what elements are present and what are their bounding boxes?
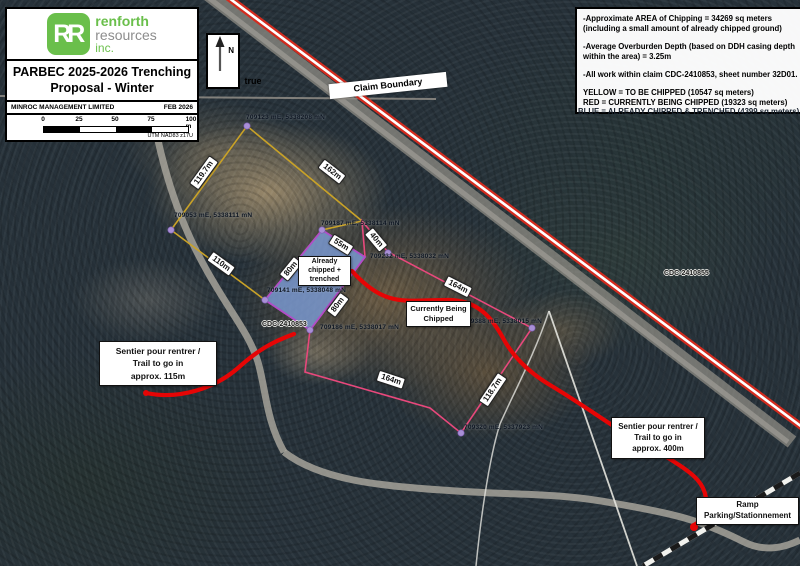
coord-label: 709320 mE, 5337923 mN <box>464 424 543 431</box>
note-claim: -All work within claim CDC-2410853, shee… <box>583 70 800 80</box>
ramp-parking-box: Ramp Parking/Stationnement <box>696 497 799 525</box>
scale-tick: 50 <box>111 116 118 123</box>
map-canvas: 709123 mE, 5338208 mN 709053 mE, 5338111… <box>0 0 800 566</box>
north-true-label: true <box>238 76 268 86</box>
legend-yellow-red: YELLOW = TO BE CHIPPED (10547 sq meters)… <box>583 88 800 108</box>
scale-tick: 0 <box>41 116 45 123</box>
map-date: FEB 2026 <box>164 104 193 111</box>
north-arrow: N true <box>206 33 240 89</box>
logo-name-bottom: inc. <box>95 42 156 54</box>
scale-bar: 0 25 50 75 100 m UTM NAD83 z17U <box>7 115 197 140</box>
scale-tick: 25 <box>75 116 82 123</box>
company-name: MINROC MANAGEMENT LIMITED <box>11 104 114 111</box>
claim-number-east: CDC-2410855 <box>664 270 709 277</box>
corner-markers <box>168 123 535 436</box>
coord-label: 709123 mE, 5338208 mN <box>246 114 325 121</box>
coord-label: 709141 mE, 5338048 mN <box>267 287 346 294</box>
company-logo: RR renforth resources inc. <box>7 9 197 59</box>
title-meta-row: MINROC MANAGEMENT LIMITED FEB 2026 <box>7 100 197 115</box>
rr-logo-icon: RR <box>47 13 90 55</box>
road-west <box>148 88 284 452</box>
title-block: RR renforth resources inc. PARBEC 2025-2… <box>5 7 199 142</box>
currently-chipped-box: Currently Being Chipped <box>406 301 471 327</box>
north-n-label: N <box>228 46 234 55</box>
trail-right-box: Sentier pour rentrer / Trail to go in ap… <box>611 417 705 459</box>
coord-label: 709232 mE, 5338032 mN <box>370 253 449 260</box>
coord-label: 709187 mE, 5338114 mN <box>321 220 400 227</box>
legend-blue: BLUE = ALREADY CHIPPED & TRENCHED (4399 … <box>578 107 799 116</box>
claim-number-west: CDC-2410853 <box>262 321 307 328</box>
note-area: -Approximate AREA of Chipping = 34269 sq… <box>583 14 800 34</box>
logo-name-mid: resources <box>95 28 156 42</box>
notes-box: -Approximate AREA of Chipping = 34269 sq… <box>575 7 800 114</box>
datum-label: UTM NAD83 z17U <box>147 133 193 139</box>
note-overburden: -Average Overburden Depth (based on DDH … <box>583 42 800 62</box>
already-chipped-box: Already chipped + trenched <box>298 256 351 286</box>
trail-left-box: Sentier pour rentrer / Trail to go in ap… <box>99 341 217 386</box>
logo-name-top: renforth <box>95 14 156 28</box>
coord-label: 709053 mE, 5338111 mN <box>174 212 252 219</box>
coord-label: 709186 mE, 5338017 mN <box>320 324 399 331</box>
page-title: PARBEC 2025-2026 Trenching Proposal - Wi… <box>7 59 197 100</box>
scale-bar-segments <box>43 126 189 133</box>
coord-label: 709388 mE, 5338015 mN <box>463 318 542 325</box>
scale-tick: 75 <box>147 116 154 123</box>
